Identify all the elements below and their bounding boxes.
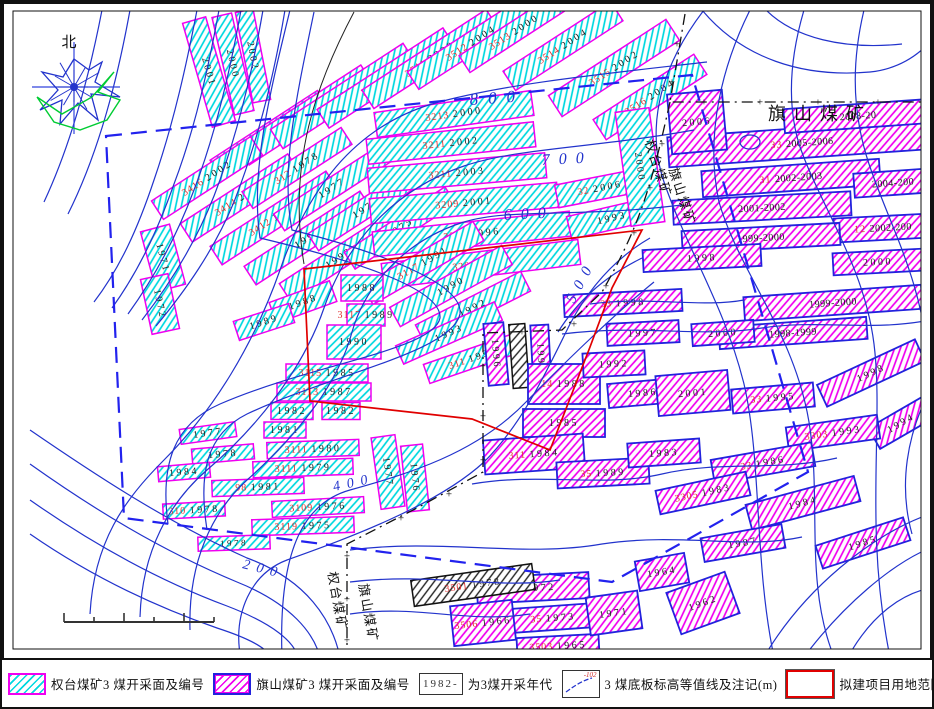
boundary-plus-mark: + bbox=[571, 319, 577, 331]
quantai-mining-face: 1977 bbox=[179, 422, 237, 445]
boundary-plus-mark: + bbox=[674, 39, 680, 51]
legend-label: 旗山煤矿3 煤开采面及编号 bbox=[256, 674, 409, 693]
boundary-plus-mark: + bbox=[480, 411, 486, 423]
face-label: 1997 bbox=[628, 327, 659, 340]
quantai-mining-face: 1978 bbox=[191, 444, 254, 464]
quantai-mining-face: 98 1981 bbox=[212, 477, 305, 496]
qishan-mining-face: 3305 1983 bbox=[656, 472, 751, 515]
boundary-plus-mark: + bbox=[757, 97, 763, 109]
quantai-mining-face: 1990 bbox=[327, 325, 381, 359]
qishan-mining-face: 2001-2002 bbox=[672, 191, 851, 224]
boundary-plus-mark: + bbox=[603, 281, 609, 293]
qishan-mining-face: 1964 bbox=[635, 553, 689, 591]
face-label: 1998 bbox=[687, 252, 718, 265]
mining-year-swatch: 1982- bbox=[419, 673, 463, 695]
boundary-plus-mark: + bbox=[519, 327, 525, 339]
boundary-plus-mark: + bbox=[398, 513, 404, 525]
mine-name-label: 旗山煤矿 bbox=[666, 166, 699, 228]
quantai-mining-face: 1978 bbox=[198, 535, 270, 552]
north-label: 北 bbox=[61, 34, 76, 51]
legend-item-1: 权台煤矿3 煤开采面及编号 bbox=[8, 673, 204, 695]
qishan-mining-face: 33 1995 bbox=[731, 382, 815, 413]
qishan-mining-face: 3503 1965 bbox=[517, 634, 600, 658]
north-rose: 北 bbox=[32, 34, 120, 134]
legend-item-2: 旗山煤矿3 煤开采面及编号 bbox=[213, 673, 409, 695]
project-area-swatch bbox=[786, 670, 834, 698]
face-label: 3111 1979 bbox=[274, 462, 331, 475]
qishan-mining-face: 2004-200 bbox=[853, 168, 932, 197]
qishan-mining-face: 1987 bbox=[701, 524, 786, 562]
face-label: 3111 1980 bbox=[284, 443, 341, 456]
face-label: 1983 bbox=[649, 447, 680, 460]
contour-elevation-label: 800 bbox=[469, 86, 526, 109]
face-label: 14 1988 bbox=[541, 379, 587, 390]
boundary-plus-mark: + bbox=[701, 97, 707, 109]
face-label: 98 1981 bbox=[235, 481, 281, 494]
face-label: 1990 bbox=[339, 337, 369, 348]
contour-elevation-label: 600 bbox=[503, 204, 555, 224]
boundary-plus-mark: + bbox=[446, 489, 452, 501]
quantai-mining-face: 1988 bbox=[341, 275, 383, 301]
qishan-mining-face: 1992 bbox=[582, 350, 645, 377]
boundary-plus-mark: + bbox=[344, 635, 350, 647]
qishan-mining-face: 1983 bbox=[627, 439, 700, 468]
boundary-plus-mark: + bbox=[344, 551, 350, 563]
qishan-mining-face: 2006 bbox=[667, 90, 727, 155]
qishan-mining-face: 1998 bbox=[643, 244, 762, 272]
legend-label: 权台煤矿3 煤开采面及编号 bbox=[51, 674, 204, 693]
legend-label: 3 煤底板标高等值线及注记(m) bbox=[605, 674, 778, 693]
face-label: 1982 bbox=[277, 406, 307, 417]
face-label: 2000 bbox=[863, 256, 894, 269]
quantai-mining-face: 3113 1987 bbox=[277, 383, 371, 401]
legend-item-5: 拟建项目用地范围 bbox=[786, 670, 934, 698]
quantai-mining-face: 3117 1989 bbox=[337, 304, 394, 326]
map-legend: 权台煤矿3 煤开采面及编号旗山煤矿3 煤开采面及编号1982-为3煤开采年代-1… bbox=[2, 660, 932, 707]
map-canvas: 2001200020023410 20043412 20003414 20003… bbox=[2, 2, 932, 660]
boundary-plus-mark: + bbox=[631, 228, 637, 240]
qishan-mining-face: 1985 bbox=[816, 517, 911, 568]
qishan-mining-face: 3506 1966 bbox=[450, 600, 516, 646]
face-label: 1982 bbox=[326, 406, 356, 417]
map-content: 2001200020023410 20043412 20003414 20003… bbox=[30, 2, 932, 658]
face-label: 1985 bbox=[549, 418, 579, 429]
legend-item-4: -1023 煤底板标高等值线及注记(m) bbox=[562, 670, 778, 698]
qishan-mining-face: 2001 bbox=[655, 370, 730, 416]
legend-label: 拟建项目用地范围 bbox=[839, 674, 934, 693]
quantai-mining-face: 1984 bbox=[157, 462, 210, 481]
quantai-face-swatch bbox=[8, 673, 46, 695]
boundary-plus-mark: + bbox=[480, 361, 486, 373]
quantai-mining-face: 1981 bbox=[264, 422, 306, 438]
qishan-mining-face: 1999-2000 bbox=[743, 285, 922, 321]
boundary-plus-mark: + bbox=[647, 183, 653, 195]
mining-map-page: 2001200020023410 20043412 20003414 20003… bbox=[0, 0, 934, 709]
boundary-plus-mark: + bbox=[669, 77, 675, 89]
qishan-face-swatch bbox=[213, 673, 251, 695]
scale-bar bbox=[64, 613, 214, 622]
qishan-mining-face: 1998 bbox=[817, 339, 925, 406]
contour-line bbox=[702, 10, 930, 73]
contour-line bbox=[848, 588, 930, 657]
quantai-mining-face: 3111 1980 bbox=[267, 439, 360, 458]
qishan-mining-face: 35 1973 bbox=[506, 603, 599, 633]
contour-elevation-label: 700 bbox=[541, 149, 593, 169]
face-label: 3117 1989 bbox=[337, 310, 394, 321]
boundary-plus-mark: + bbox=[480, 455, 486, 467]
face-label: 2000 bbox=[708, 327, 739, 340]
contour-elevation-label: 200 bbox=[241, 557, 285, 582]
boundary-plus-mark: + bbox=[875, 97, 881, 109]
contour-line bbox=[94, 10, 197, 302]
qishan-mining-face: 1971 bbox=[586, 591, 643, 636]
qishan-mining-face: 1997 bbox=[606, 320, 679, 346]
qishan-mining-face: 2000 bbox=[691, 320, 754, 346]
face-label: 3503 1965 bbox=[529, 640, 587, 654]
qishan-mining-face: 1984 bbox=[746, 476, 861, 530]
legend-label: 为3煤开采年代 bbox=[468, 674, 553, 693]
mining-faces-layer: 2001200020023410 20043412 20003414 20003… bbox=[140, 2, 932, 658]
legend-item-3: 1982-为3煤开采年代 bbox=[419, 673, 553, 695]
mine-name-label: 旗山煤矿 bbox=[768, 104, 872, 124]
qishan-mining-face: 12 2002-200 bbox=[833, 213, 932, 242]
contour-line bbox=[766, 10, 902, 46]
contour-swatch: -102 bbox=[562, 670, 600, 698]
quantai-mining-face: 1989 bbox=[233, 304, 294, 341]
face-label: 1992 bbox=[599, 358, 630, 371]
